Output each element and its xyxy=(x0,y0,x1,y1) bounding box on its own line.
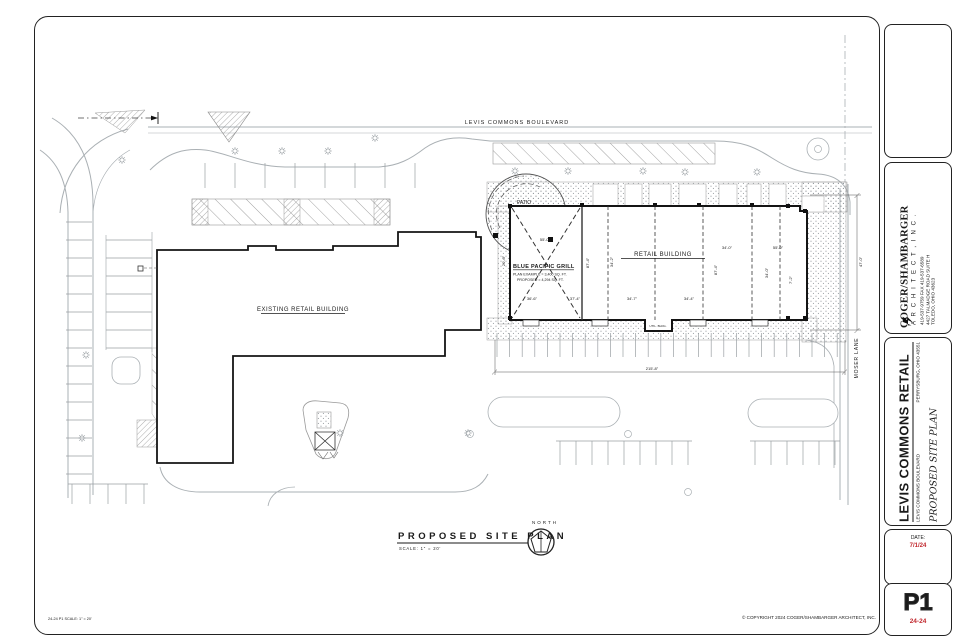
sheet-number: P1 xyxy=(903,589,932,616)
sheet-title: PROPOSED SITE PLAN xyxy=(929,342,940,522)
titleblock-date-box: DATE: 7/1/24 xyxy=(884,529,952,585)
firm-type: A R C H I T E C T , I N C . xyxy=(912,213,918,325)
date-label: DATE: xyxy=(885,535,951,541)
firm-city: TOLEDO, OHIO 43623 xyxy=(931,213,937,325)
job-number: 24-24 xyxy=(885,618,951,625)
sheet-border xyxy=(34,16,880,635)
titleblock-sheetno-box: P1 24-24 xyxy=(884,583,952,636)
firm-name: COGER/SHAMBARGER xyxy=(900,168,911,328)
titleblock-blank-box xyxy=(884,24,952,158)
titleblock-firm-box: COGER/SHAMBARGER A R C H I T E C T , I N… xyxy=(884,162,952,334)
titleblock-project-box: LEVIS COMMONS RETAIL LEVIS COMMONS BOULE… xyxy=(884,337,952,526)
project-address: LEVIS COMMONS BOULEVARD xyxy=(916,453,921,521)
drawing-sheet: LEVIS COMMONS BOULEVARD MOSER LANE EXIST… xyxy=(0,0,960,640)
project-city: PERRYSBURG, OHIO 43551 xyxy=(916,342,921,402)
date-value: 7/1/24 xyxy=(885,543,951,549)
project-title: LEVIS COMMONS RETAIL xyxy=(897,342,914,522)
